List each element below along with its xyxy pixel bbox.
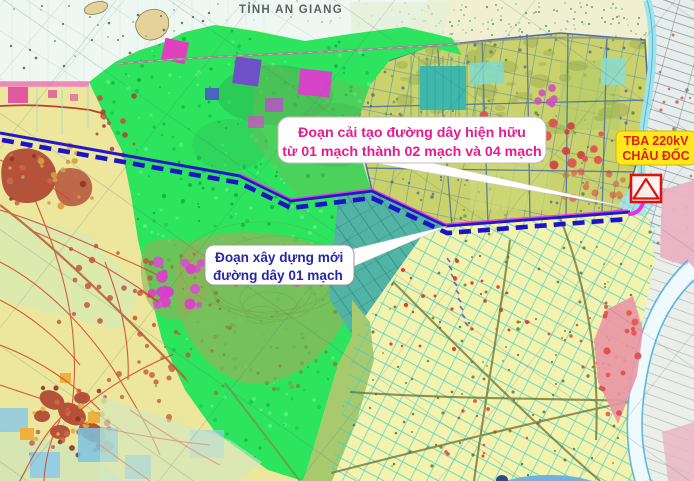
- svg-text:Đoạn cải tạo đường dây hiện hữ: Đoạn cải tạo đường dây hiện hữu: [298, 125, 526, 141]
- svg-text:TBA 220kV: TBA 220kV: [624, 134, 690, 148]
- svg-text:CHÂU ĐỐC: CHÂU ĐỐC: [622, 148, 689, 163]
- svg-text:Đoạn xây dựng mới: Đoạn xây dựng mới: [215, 250, 343, 265]
- svg-text:từ 01 mạch thành 02 mạch và 04: từ 01 mạch thành 02 mạch và 04 mạch: [282, 144, 541, 160]
- svg-text:TỈNH AN GIANG: TỈNH AN GIANG: [239, 3, 343, 16]
- svg-text:đường dây 01 mạch: đường dây 01 mạch: [213, 268, 343, 283]
